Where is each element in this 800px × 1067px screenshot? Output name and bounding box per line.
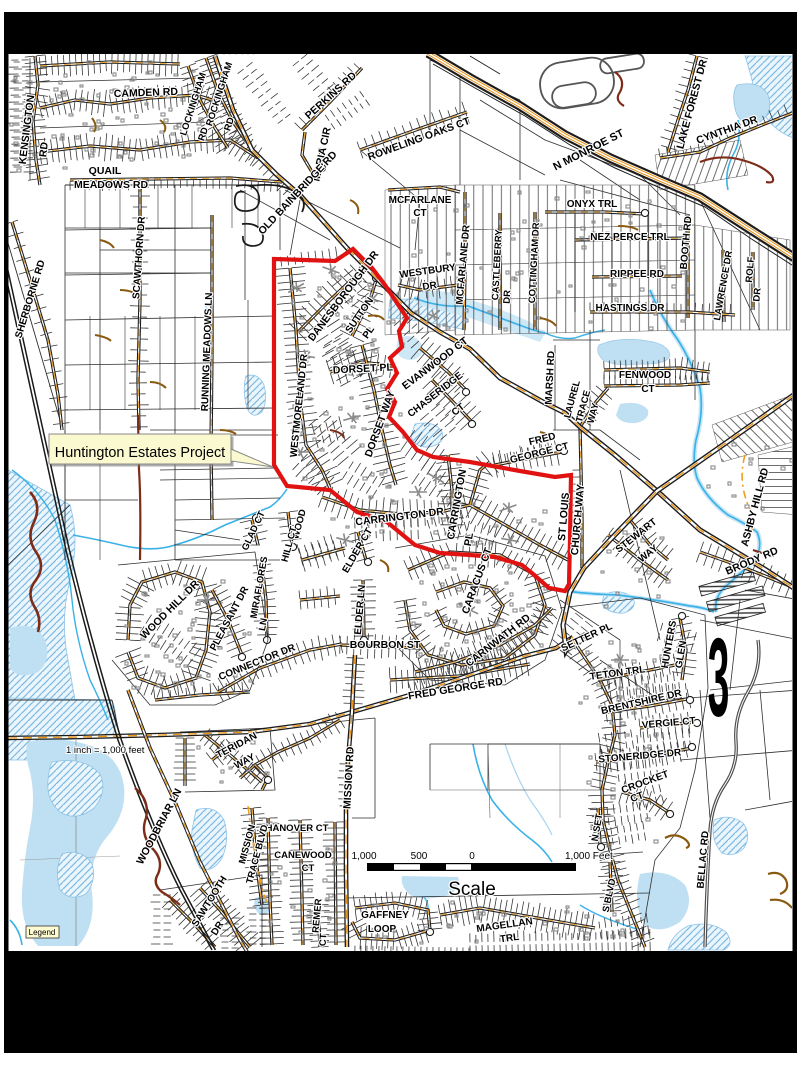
svg-text:PL: PL	[462, 531, 476, 547]
svg-text:MCFARLANE: MCFARLANE	[389, 195, 452, 206]
svg-text:LN: LN	[257, 617, 270, 632]
svg-text:CT: CT	[317, 933, 329, 947]
svg-text:BOURBON ST: BOURBON ST	[350, 639, 421, 651]
svg-text:0: 0	[469, 851, 475, 862]
svg-text:RD: RD	[37, 141, 51, 158]
svg-text:RIPPEE RD: RIPPEE RD	[610, 269, 664, 280]
svg-text:DR: DR	[422, 280, 439, 293]
svg-text:1,000 Feet: 1,000 Feet	[565, 851, 613, 862]
svg-text:LOOP: LOOP	[368, 924, 397, 935]
svg-text:CAMDEN RD: CAMDEN RD	[114, 86, 179, 100]
svg-text:Huntington Estates Project: Huntington Estates Project	[55, 445, 225, 461]
svg-text:ROLF: ROLF	[744, 256, 757, 283]
svg-text:HANOVER CT: HANOVER CT	[266, 823, 329, 834]
svg-text:DR: DR	[751, 287, 763, 302]
svg-text:GAFFNEY: GAFFNEY	[361, 910, 409, 921]
svg-text:QUAIL: QUAIL	[89, 165, 122, 177]
svg-text:ONYX TRL: ONYX TRL	[567, 199, 618, 210]
svg-text:1,000: 1,000	[351, 851, 376, 862]
svg-text:FENWOOD: FENWOOD	[619, 370, 671, 381]
svg-text:DR: DR	[502, 290, 514, 304]
svg-text:CANEWOOD: CANEWOOD	[274, 850, 332, 861]
svg-text:CT: CT	[641, 384, 654, 395]
svg-text:CT: CT	[302, 863, 315, 874]
svg-text:HASTINGS DR: HASTINGS DR	[596, 303, 666, 314]
svg-text:MEADOWS RD: MEADOWS RD	[74, 179, 148, 191]
svg-text:CT: CT	[413, 208, 426, 219]
svg-text:1 inch = 1,000 feet: 1 inch = 1,000 feet	[66, 745, 145, 756]
svg-text:500: 500	[411, 851, 428, 862]
svg-text:NEZ PERCE TRL: NEZ PERCE TRL	[590, 232, 669, 243]
svg-text:Legend: Legend	[29, 928, 56, 937]
svg-text:Scale: Scale	[448, 879, 496, 900]
svg-text:3: 3	[708, 616, 730, 740]
